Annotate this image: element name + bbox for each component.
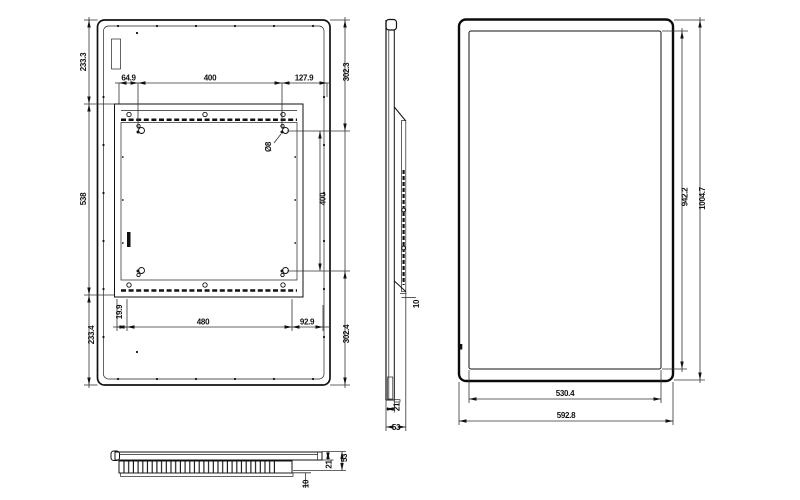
dim-rear-bottom-center: 480 xyxy=(197,318,210,327)
dim-side-panel-thickness: 21 xyxy=(393,402,402,411)
dim-front-screen-width: 530.4 xyxy=(556,389,575,398)
dim-side-bracket-offset: 10 xyxy=(412,299,421,308)
side-bracket-profile xyxy=(394,107,406,294)
bottom-dimensions: 53 21 10 xyxy=(293,452,349,489)
dim-rear-left-bottom: 233.4 xyxy=(87,325,96,344)
dim-rear-left-middle: 538 xyxy=(79,192,88,205)
vesa-mount-bracket xyxy=(115,104,304,297)
connector-port xyxy=(127,232,131,247)
side-dimensions: 10 21 53 xyxy=(386,292,421,432)
dim-rear-right-bottom: 302.4 xyxy=(342,324,351,343)
dim-front-total-height: 1004.7 xyxy=(698,186,707,210)
drawing-svg: 64.9 400 127.9 233.3 538 233.4 302.3 xyxy=(0,0,800,500)
dim-bottom-total-depth: 53 xyxy=(340,453,349,462)
dim-front-screen-height: 942.2 xyxy=(681,187,690,206)
front-side-button xyxy=(459,344,462,350)
bottom-bar-outline xyxy=(115,452,322,460)
dim-rear-bottom-right: 92.9 xyxy=(300,318,315,327)
dim-bottom-vent-inset: 10 xyxy=(302,479,311,488)
side-view: 10 21 53 xyxy=(386,20,421,432)
bottom-view: 53 21 10 xyxy=(111,451,349,488)
bottom-lip xyxy=(121,473,294,476)
front-dimensions: 942.2 1004.7 530.4 592.8 xyxy=(459,17,707,425)
dim-side-total-depth: 53 xyxy=(392,423,401,432)
dim-rear-top-right: 127.9 xyxy=(295,74,314,83)
rear-view: 64.9 400 127.9 233.3 538 233.4 302.3 xyxy=(79,17,351,388)
dim-rear-right-top: 302.3 xyxy=(342,62,351,81)
dim-rear-left-top: 233.3 xyxy=(79,52,88,71)
dim-rear-right-middle: 400 xyxy=(319,192,328,205)
rear-side-slot xyxy=(112,39,121,69)
front-screen-outline xyxy=(469,31,661,369)
dim-bottom-panel-thickness: 21 xyxy=(325,460,334,469)
front-bezel-outline xyxy=(459,20,673,382)
dim-rear-bottom-left: 19.9 xyxy=(115,304,124,319)
technical-drawing-canvas: 64.9 400 127.9 233.3 538 233.4 302.3 xyxy=(0,0,800,500)
dim-keyhole-diameter: Ø8 xyxy=(264,141,273,152)
vent-grille-slats xyxy=(122,462,278,473)
front-view: 942.2 1004.7 530.4 592.8 xyxy=(459,17,707,425)
rear-dimensions: 64.9 400 127.9 233.3 538 233.4 302.3 xyxy=(79,17,351,388)
dim-rear-top-center: 400 xyxy=(204,74,217,83)
side-bottom-insert xyxy=(388,377,393,399)
side-top-cap xyxy=(386,20,397,31)
dim-rear-top-left: 64.9 xyxy=(121,74,136,83)
dim-front-total-width: 592.8 xyxy=(557,411,576,420)
